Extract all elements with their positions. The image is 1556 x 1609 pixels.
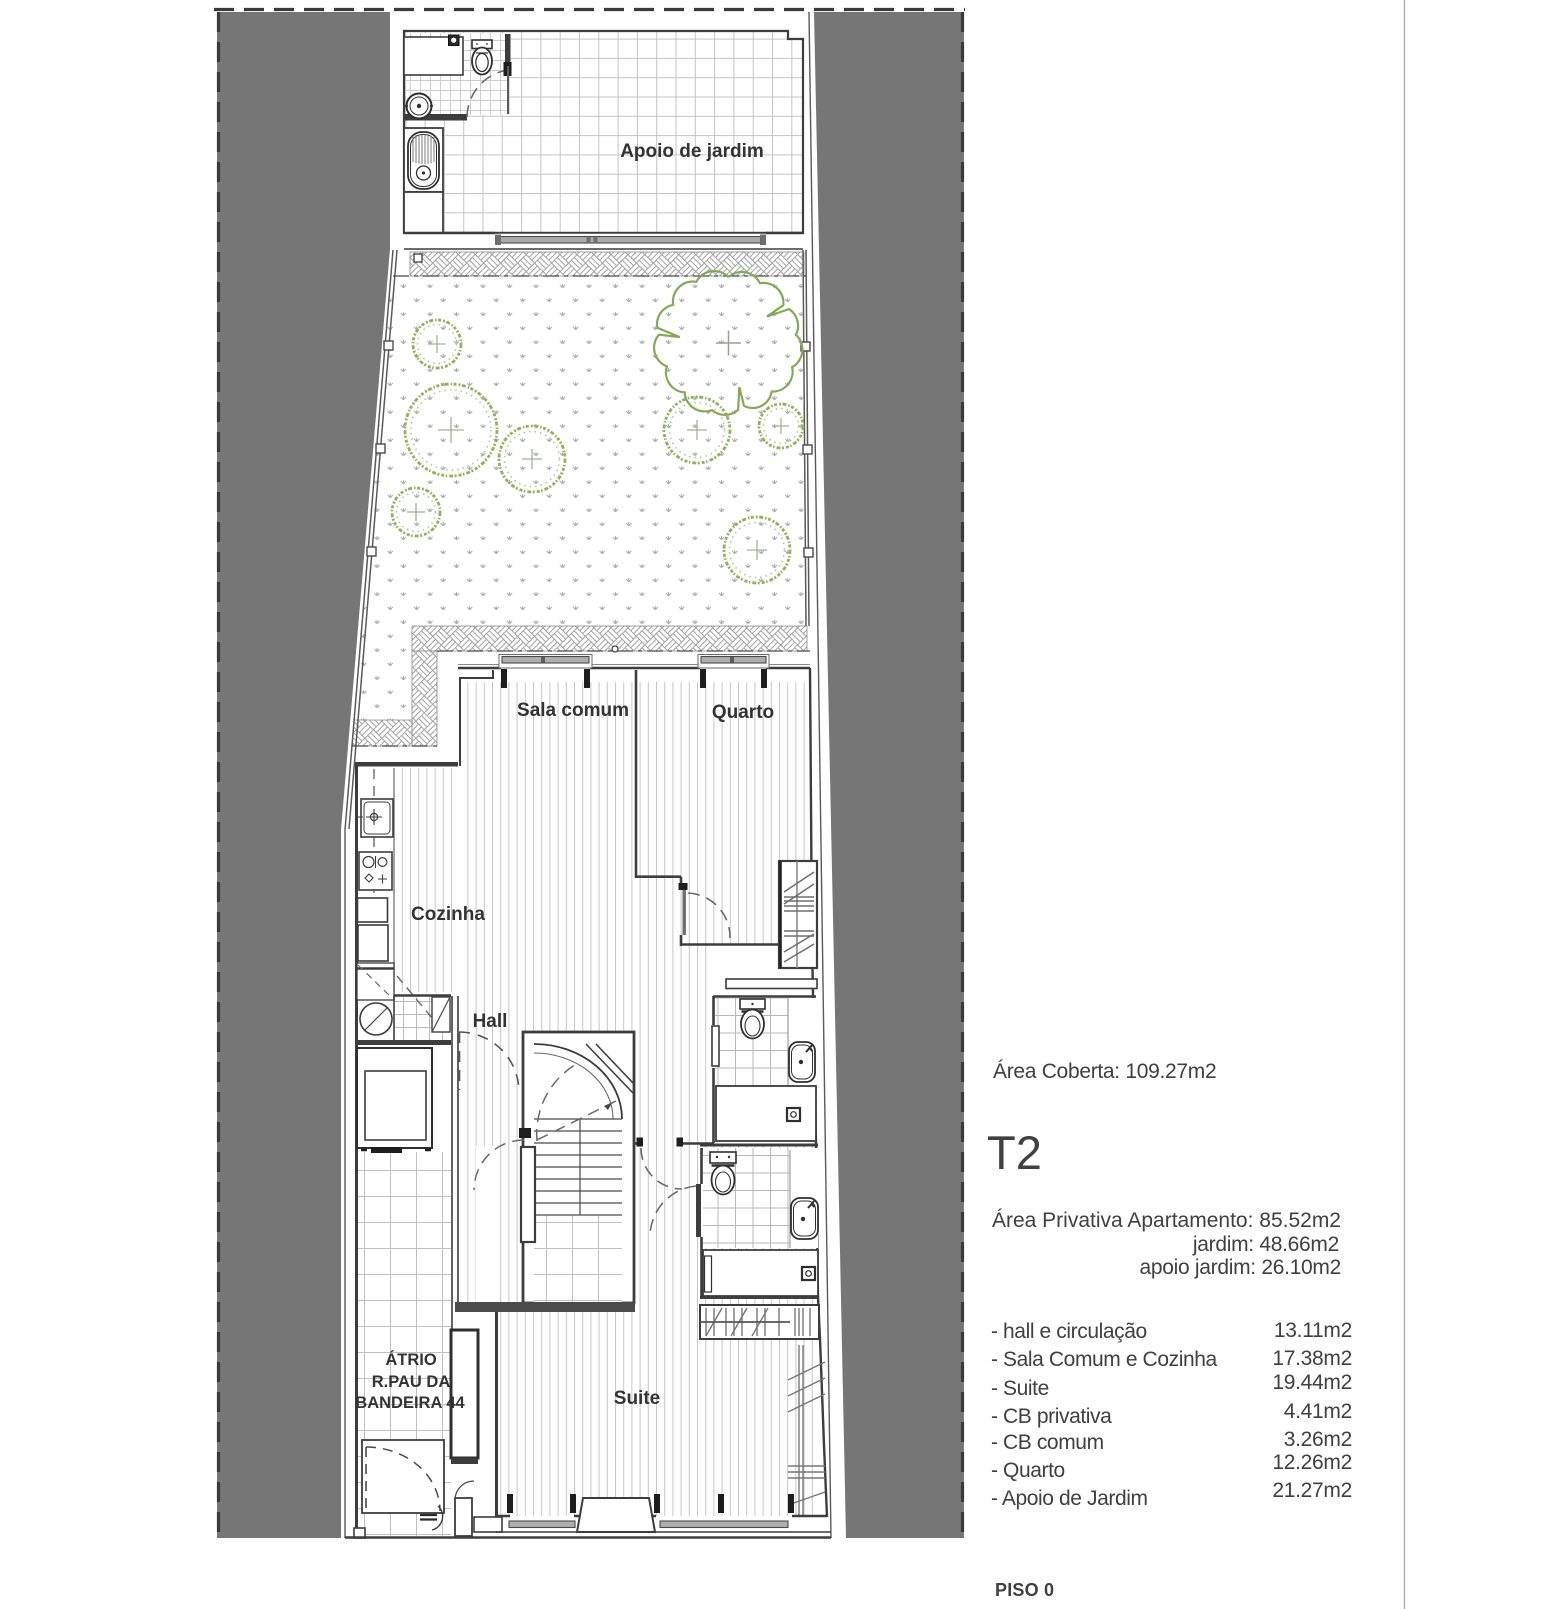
svg-text:Cozinha: Cozinha bbox=[411, 904, 485, 925]
svg-text:Área Privativa Apartamento: 85: Área Privativa Apartamento: 85.52m2 bbox=[992, 1209, 1341, 1232]
svg-text:17.38m2: 17.38m2 bbox=[1272, 1347, 1352, 1370]
svg-text:12.26m2: 12.26m2 bbox=[1272, 1451, 1352, 1474]
svg-text:Hall: Hall bbox=[473, 1011, 508, 1032]
svg-text:13.11m2: 13.11m2 bbox=[1274, 1319, 1352, 1342]
svg-text:jardim: 48.66m2: jardim: 48.66m2 bbox=[1192, 1233, 1339, 1256]
svg-text:T2: T2 bbox=[987, 1126, 1042, 1179]
svg-text:- CB privativa: - CB privativa bbox=[991, 1405, 1112, 1428]
svg-text:- Apoio de Jardim: - Apoio de Jardim bbox=[991, 1487, 1148, 1510]
svg-text:Quarto: Quarto bbox=[712, 702, 774, 723]
svg-text:Apoio de jardim: Apoio de jardim bbox=[620, 141, 764, 162]
svg-text:- Sala Comum e Cozinha: - Sala Comum e Cozinha bbox=[991, 1348, 1218, 1371]
svg-text:- hall e circulação: - hall e circulação bbox=[991, 1320, 1147, 1343]
svg-text:apoio jardim: 26.10m2: apoio jardim: 26.10m2 bbox=[1140, 1256, 1342, 1279]
svg-text:BANDEIRA 44: BANDEIRA 44 bbox=[355, 1394, 465, 1412]
svg-text:19.44m2: 19.44m2 bbox=[1272, 1371, 1352, 1394]
svg-text:Suite: Suite bbox=[614, 1388, 660, 1409]
svg-text:Área Coberta: 109.27m2: Área Coberta: 109.27m2 bbox=[993, 1060, 1216, 1083]
svg-text:- Suite: - Suite bbox=[991, 1377, 1049, 1400]
svg-text:3.26m2: 3.26m2 bbox=[1284, 1428, 1352, 1451]
svg-text:- Quarto: - Quarto bbox=[991, 1459, 1065, 1482]
svg-text:ÁTRIO: ÁTRIO bbox=[385, 1350, 436, 1369]
svg-text:R.PAU DA: R.PAU DA bbox=[372, 1373, 451, 1391]
svg-text:- CB comum: - CB comum bbox=[991, 1431, 1104, 1454]
svg-text:Sala comum: Sala comum bbox=[517, 700, 629, 721]
svg-text:4.41m2: 4.41m2 bbox=[1284, 1400, 1352, 1423]
svg-text:PISO 0: PISO 0 bbox=[995, 1580, 1054, 1600]
svg-text:21.27m2: 21.27m2 bbox=[1272, 1479, 1352, 1502]
